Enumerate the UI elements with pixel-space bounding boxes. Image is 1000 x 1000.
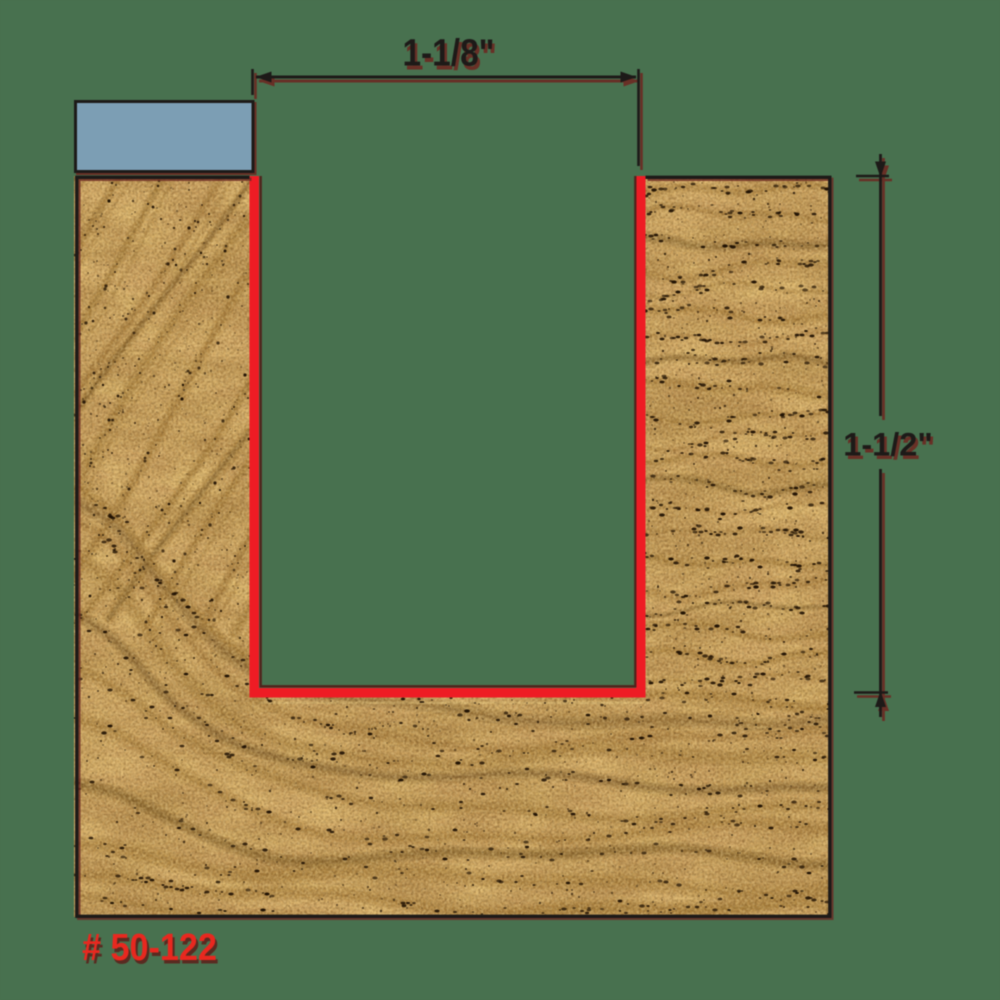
svg-text:1-1/8": 1-1/8"	[402, 32, 494, 74]
svg-text:1-1/2": 1-1/2"	[843, 427, 933, 463]
svg-text:# 50-122: # 50-122	[82, 925, 217, 968]
